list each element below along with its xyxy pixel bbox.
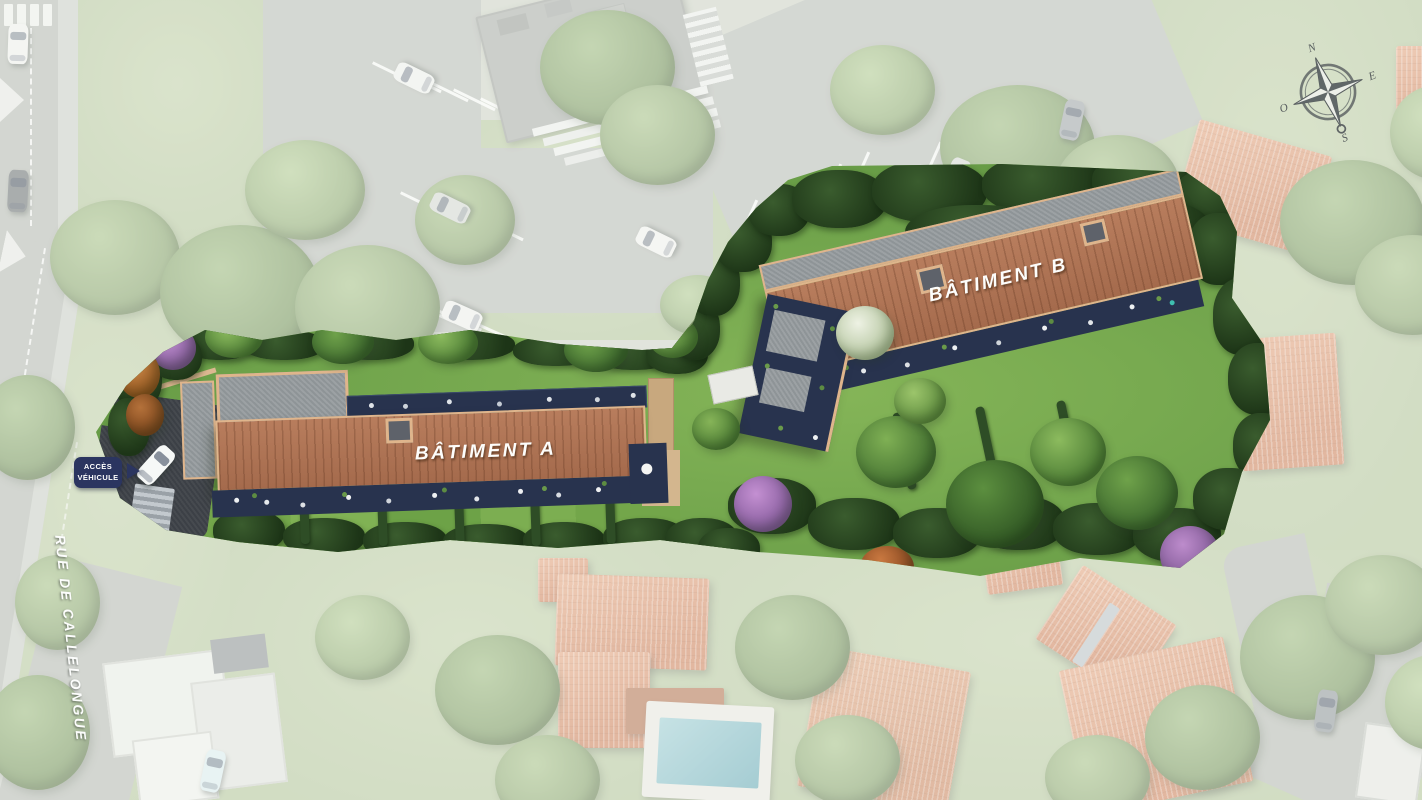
faded-tree (245, 140, 365, 240)
access-badge-line1: ACCÈS (76, 461, 120, 472)
neighbor-house-white (91, 630, 309, 800)
compass-west-label: O (1278, 102, 1290, 116)
wing-gravel-patch (759, 367, 811, 412)
faded-tree (795, 715, 900, 800)
tree (836, 306, 894, 360)
car (7, 170, 29, 213)
crosswalk-stripe (4, 4, 13, 26)
tree (692, 408, 740, 450)
hedge (808, 498, 900, 550)
wing-gravel-patch (766, 310, 826, 362)
compass-north-label: N (1306, 41, 1320, 56)
site-plan-aerial-view: BÂTIMENT A BÂTIMENT B (0, 0, 1422, 800)
crosswalk-stripe (30, 4, 39, 26)
car (7, 24, 28, 65)
faded-tree (1145, 685, 1260, 790)
compass-east-label: E (1366, 70, 1378, 84)
access-badge-line2: VÉHICULE (76, 472, 120, 483)
tree (1096, 456, 1178, 530)
flat-roof-gravel (180, 381, 217, 480)
faded-tree (315, 595, 410, 680)
vehicle-access-badge: ACCÈS VÉHICULE (74, 457, 122, 488)
swimming-pool (656, 717, 761, 788)
roof-dormer (385, 418, 413, 444)
tree (126, 394, 164, 436)
tree (1030, 418, 1106, 486)
tree (946, 460, 1044, 548)
wing-planters (773, 303, 779, 309)
tree (734, 476, 792, 532)
crosswalk-stripe (17, 4, 26, 26)
garage-roof (210, 633, 269, 673)
faded-tree (435, 635, 560, 745)
crosswalk-stripe (43, 4, 52, 26)
faded-tree (735, 595, 850, 700)
tree (894, 378, 946, 424)
tree (856, 416, 936, 488)
faded-tree (600, 85, 715, 185)
access-arrow-icon (127, 463, 140, 479)
building-a: BÂTIMENT A (177, 346, 682, 523)
faded-tree (830, 45, 935, 135)
road-center-line (30, 28, 32, 226)
